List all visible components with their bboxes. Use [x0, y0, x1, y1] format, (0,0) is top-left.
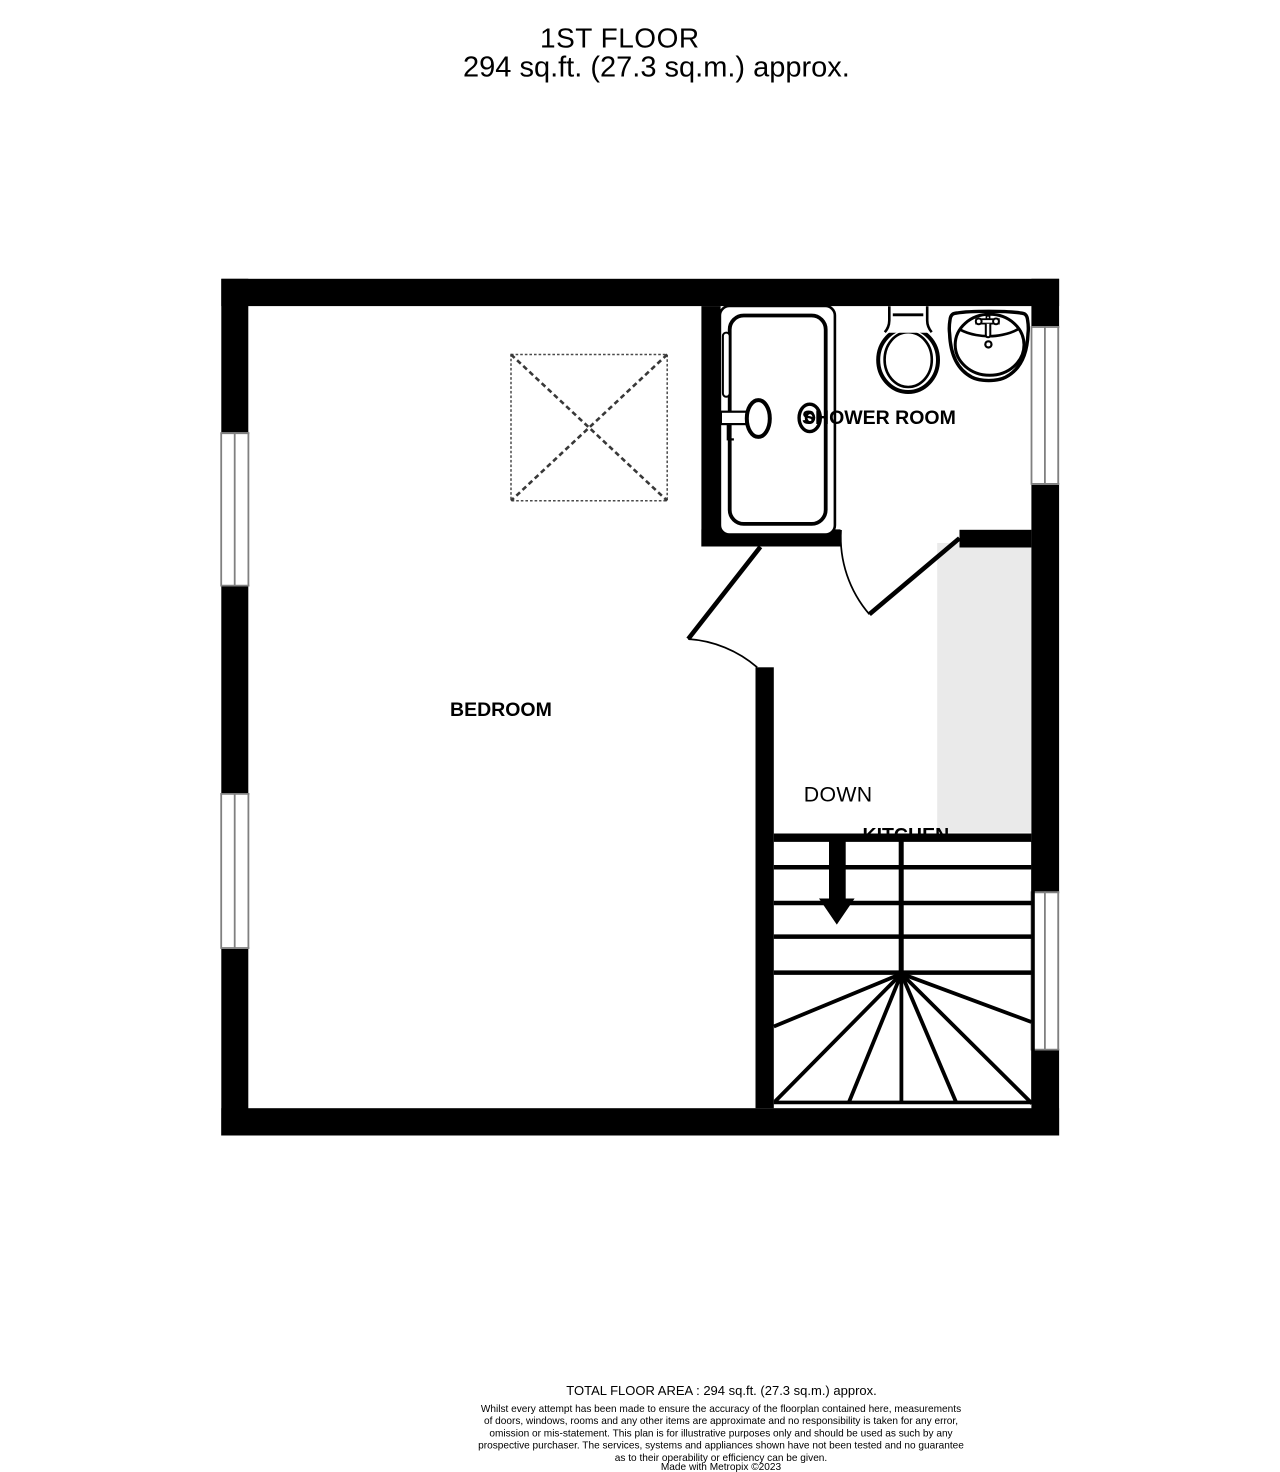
svg-text:prospective purchaser. The ser: prospective purchaser. The services, sys…: [478, 1441, 964, 1452]
svg-text:omission or mis-statement. Thi: omission or mis-statement. This plan is …: [489, 1428, 953, 1439]
svg-text:BEDROOM: BEDROOM: [450, 699, 552, 721]
svg-text:of doors, windows, rooms and a: of doors, windows, rooms and any other i…: [484, 1416, 958, 1427]
svg-text:294 sq.ft. (27.3 sq.m.) approx: 294 sq.ft. (27.3 sq.m.) approx.: [463, 51, 850, 83]
svg-text:DOWN: DOWN: [804, 783, 873, 807]
svg-text:KITCHEN: KITCHEN: [863, 824, 950, 846]
svg-text:Whilst every attempt has been: Whilst every attempt has been made to en…: [481, 1404, 961, 1415]
svg-text:1ST FLOOR: 1ST FLOOR: [540, 23, 700, 54]
svg-text:Made with Metropix ©2023: Made with Metropix ©2023: [661, 1462, 782, 1472]
svg-text:TOTAL FLOOR AREA : 294 sq.ft.: TOTAL FLOOR AREA : 294 sq.ft. (27.3 sq.m…: [566, 1383, 876, 1398]
svg-text:SHOWER ROOM: SHOWER ROOM: [802, 407, 956, 429]
